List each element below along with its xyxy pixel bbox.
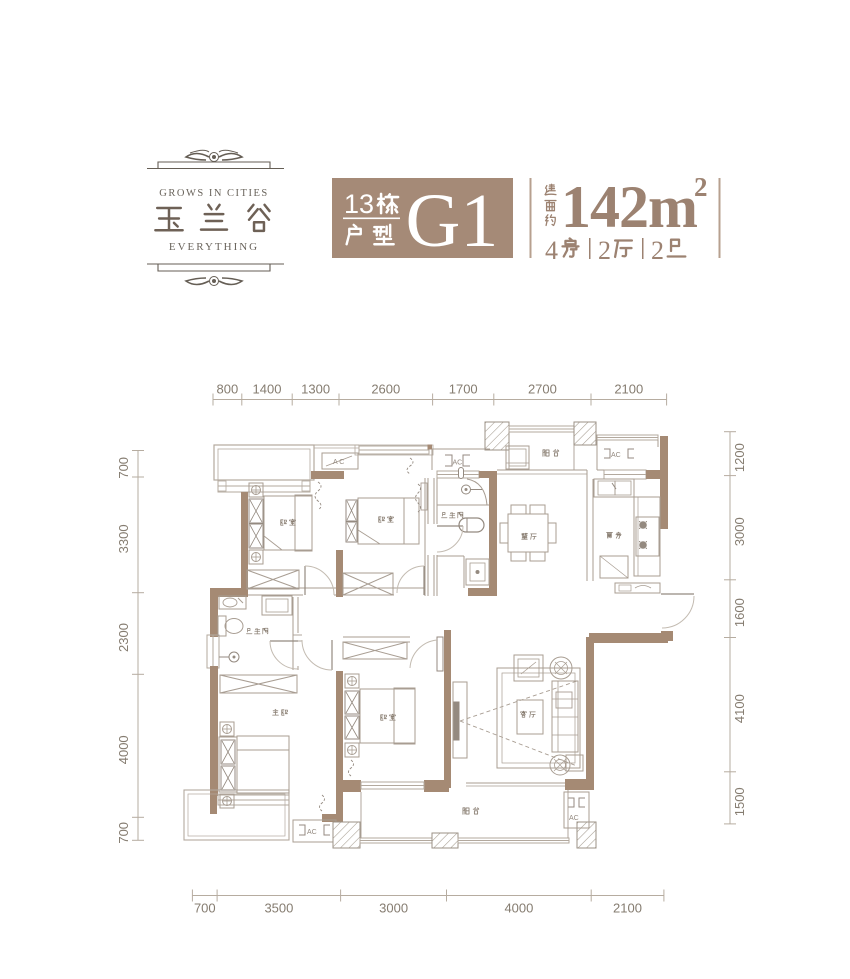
svg-text:2100: 2100 (613, 901, 642, 916)
svg-text:700: 700 (116, 822, 131, 844)
svg-text:1200: 1200 (732, 443, 747, 472)
svg-text:142m: 142m (561, 174, 697, 240)
svg-text:2100: 2100 (614, 382, 643, 397)
svg-text:AC: AC (307, 829, 317, 836)
svg-text:800: 800 (217, 382, 239, 397)
svg-text:A C: A C (333, 459, 344, 466)
svg-text:EVERYTHING: EVERYTHING (169, 241, 259, 253)
svg-text:GROWS IN CITIES: GROWS IN CITIES (159, 188, 268, 199)
svg-text:3500: 3500 (264, 901, 293, 916)
svg-text:3300: 3300 (116, 524, 131, 553)
svg-text:AC: AC (569, 815, 579, 822)
svg-text:3000: 3000 (379, 901, 408, 916)
svg-text:4: 4 (545, 236, 558, 265)
svg-text:1600: 1600 (732, 598, 747, 627)
svg-text:2600: 2600 (371, 382, 400, 397)
svg-text:AC: AC (453, 460, 463, 467)
svg-text:2: 2 (651, 236, 664, 265)
svg-text:2: 2 (598, 236, 611, 265)
svg-text:1300: 1300 (301, 382, 330, 397)
svg-text:2700: 2700 (528, 382, 557, 397)
svg-text:700: 700 (194, 901, 216, 916)
svg-text:1400: 1400 (253, 382, 282, 397)
svg-text:1700: 1700 (449, 382, 478, 397)
svg-text:700: 700 (116, 457, 131, 479)
svg-text:2: 2 (694, 172, 708, 202)
svg-text:13: 13 (344, 189, 374, 219)
svg-text:3000: 3000 (732, 517, 747, 546)
svg-text:4100: 4100 (732, 694, 747, 723)
svg-text:1500: 1500 (732, 787, 747, 816)
svg-text:2300: 2300 (116, 623, 131, 652)
svg-text:G1: G1 (406, 179, 499, 263)
svg-text:4000: 4000 (116, 735, 131, 764)
svg-text:4000: 4000 (504, 901, 533, 916)
svg-text:AC: AC (611, 452, 621, 459)
